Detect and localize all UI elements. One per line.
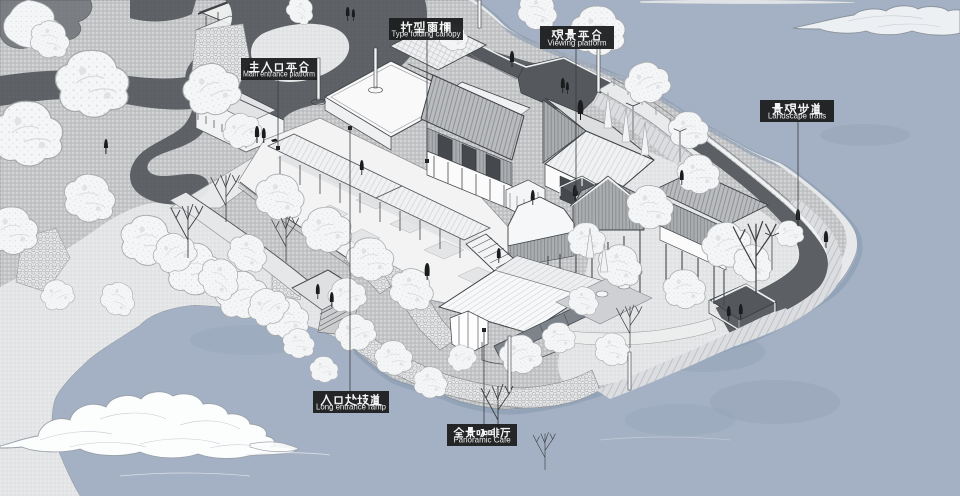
svg-text:Type folding canopy: Type folding canopy [392,30,461,39]
svg-text:Long entrance ramp: Long entrance ramp [316,403,387,412]
svg-text:Landscape trails: Landscape trails [768,112,826,121]
svg-text:Panoramic Cafe: Panoramic Cafe [453,436,511,445]
svg-text:Viewing platform: Viewing platform [548,39,607,48]
svg-text:Main entrance platform: Main entrance platform [243,70,315,79]
